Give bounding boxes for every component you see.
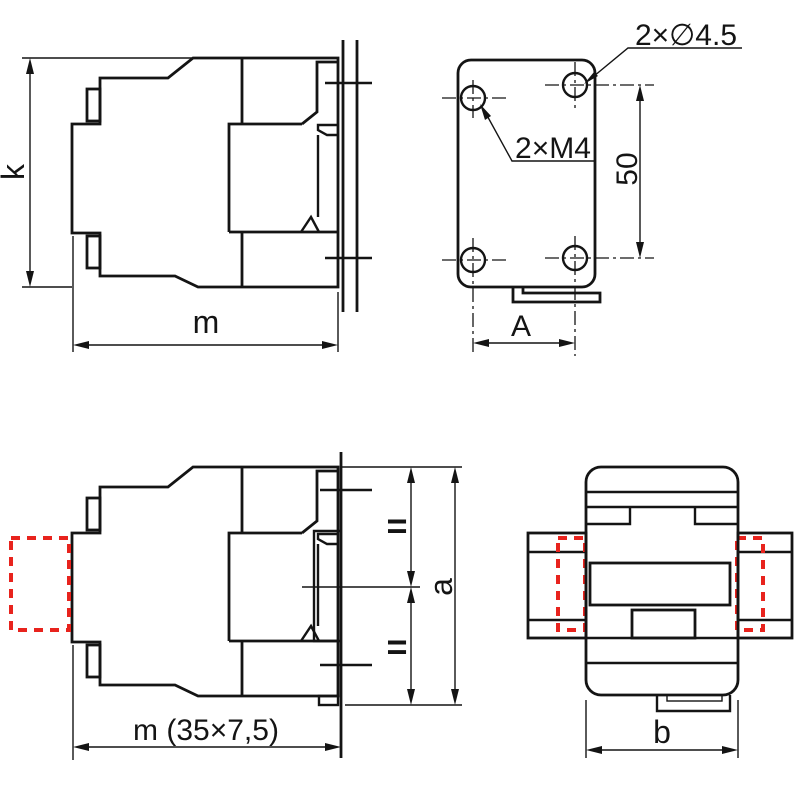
plate-bottom-tab: [513, 287, 600, 302]
dim-50-arrow-down: [636, 242, 644, 258]
dim-A-arrow-right: [559, 339, 575, 347]
a-arrow-down: [451, 689, 459, 705]
technical-drawing-page: k m 2×∅4.5 2: [0, 0, 800, 800]
dim-label-a: a: [423, 578, 459, 596]
dimension-k: k: [0, 58, 193, 287]
callout-drill-holes: 2×∅4.5: [584, 19, 742, 84]
split-arrow-bottom-down: [407, 689, 415, 705]
m-arrow-right: [322, 341, 338, 349]
body-outline: [72, 58, 338, 287]
housing-outline: [586, 467, 738, 695]
view-side-on-rail: k m: [0, 40, 372, 352]
contactor-side-body: [72, 58, 338, 287]
contactor-side-body-lower: [72, 467, 338, 696]
m-rail-arrow-right: [325, 743, 341, 751]
din-tab-footprint: [657, 695, 730, 711]
equal-label-upper: =: [386, 505, 407, 546]
accessory-outline-dashed: [11, 538, 69, 630]
b-arrow-left: [586, 746, 602, 754]
drill-label: 2×∅4.5: [635, 19, 737, 52]
dimension-m-rail: m (35×7,5): [73, 645, 341, 760]
side-wings: [528, 533, 792, 638]
k-arrow-up: [26, 58, 34, 74]
dim-label-k: k: [0, 163, 31, 180]
din-rail-section: [302, 452, 420, 758]
front-lug-upper: [87, 89, 100, 121]
m-arrow-left: [73, 341, 89, 349]
center-boss: [632, 610, 695, 638]
view-footprint: b: [528, 467, 792, 758]
label-recess: [590, 563, 730, 605]
split-arrow-top-up: [407, 467, 415, 483]
dim-label-b: b: [653, 714, 671, 750]
magnet-block: [229, 124, 338, 232]
dimension-m: m: [73, 236, 338, 352]
rail-flange-ticks-lower: [320, 490, 372, 665]
callout-tapped-holes: 2×M4: [480, 104, 594, 165]
dimension-50: 50: [611, 85, 644, 258]
din-rail-lines: [343, 40, 357, 312]
k-arrow-down: [26, 271, 34, 287]
dim-A-arrow-left: [473, 339, 489, 347]
b-arrow-right: [722, 746, 738, 754]
tap-leader-arrow: [480, 104, 491, 120]
rail-hook: [318, 125, 338, 217]
dim-label-A: A: [511, 310, 531, 343]
contactor-dimension-drawing: k m 2×∅4.5 2: [0, 0, 800, 800]
dimension-a-group: = = a: [340, 467, 462, 705]
housing-footprint: [586, 467, 738, 711]
view-mounting-plate: 2×∅4.5 2×M4 50 A: [442, 19, 742, 356]
mounting-holes: [442, 62, 654, 356]
hole-centerlines: [442, 62, 654, 356]
dimension-b: b: [586, 700, 738, 758]
view-side-with-accessory: = = a m (35×7,5): [11, 452, 462, 760]
equal-label-lower: =: [386, 626, 407, 667]
split-arrow-mid-down: [407, 571, 415, 587]
split-arrow-mid-up: [407, 587, 415, 603]
rear-chamfer: [302, 62, 338, 124]
k-extension-lines: [22, 58, 193, 287]
drill-leader-line: [588, 48, 742, 81]
front-lug-lower: [87, 236, 100, 268]
rail-spring-clip: [301, 217, 319, 232]
din-rail: [325, 40, 372, 312]
m-rail-arrow-left: [73, 743, 89, 751]
latch-slots: [586, 507, 738, 524]
dim-label-m: m: [193, 304, 220, 340]
dimension-A: A: [473, 310, 575, 347]
tap-label: 2×M4: [515, 132, 591, 165]
dim-label-m-rail: m (35×7,5): [133, 714, 279, 747]
a-arrow-up: [451, 467, 459, 483]
dim-label-50: 50: [611, 152, 644, 185]
dim-50-arrow-up: [636, 85, 644, 101]
